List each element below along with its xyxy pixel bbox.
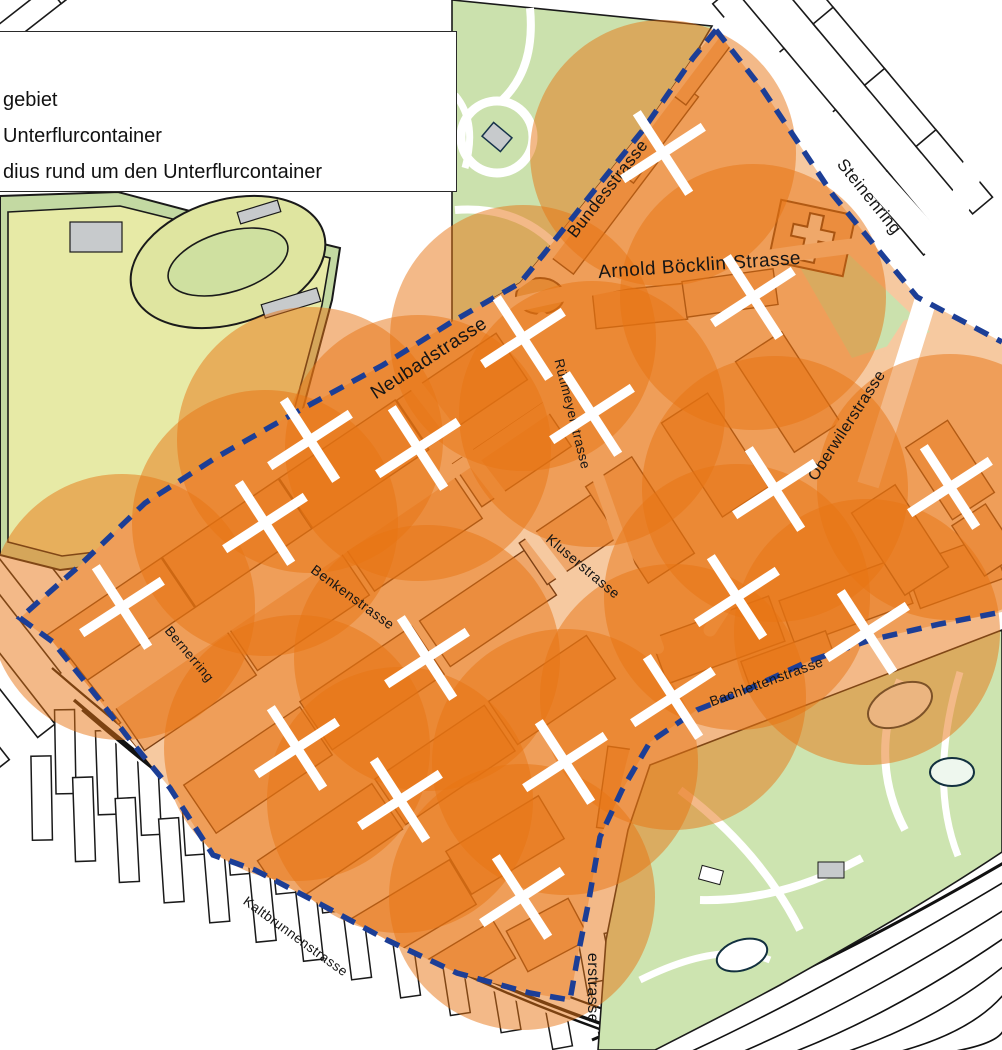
- legend-line-area: gebiet: [3, 82, 456, 118]
- map-stage: BundesstrasseSteinenringArnold Böcklin-S…: [0, 0, 1002, 1050]
- street-label-erstrasse: erstrasse: [584, 953, 601, 1023]
- legend-line-radius: dius rund um den Unterflurcontainer: [3, 154, 456, 190]
- building: [73, 777, 96, 862]
- legend-line-container: Unterflurcontainer: [3, 118, 456, 154]
- legend: gebiet Unterflurcontainer dius rund um d…: [0, 31, 457, 192]
- building: [159, 818, 185, 903]
- building: [48, 0, 129, 4]
- building: [115, 798, 139, 883]
- building: [31, 756, 52, 840]
